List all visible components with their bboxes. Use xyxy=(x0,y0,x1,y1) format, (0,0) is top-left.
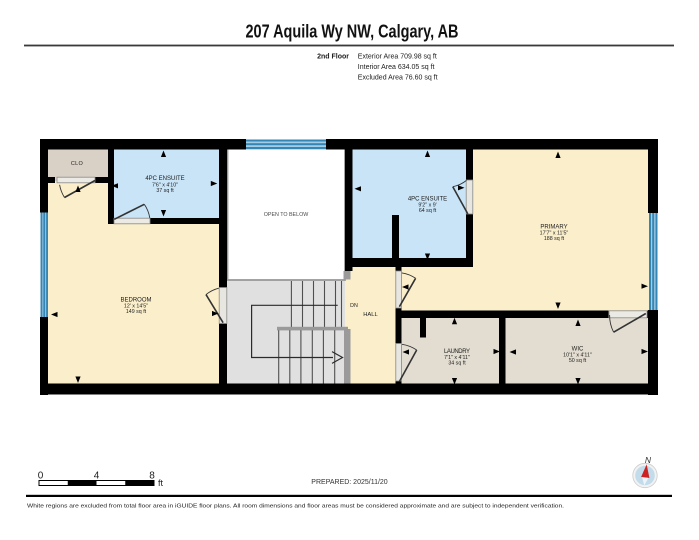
svg-text:50 sq ft: 50 sq ft xyxy=(569,358,587,364)
svg-text:White regions are excluded fro: White regions are excluded from total fl… xyxy=(27,503,565,509)
svg-text:0: 0 xyxy=(38,471,44,482)
svg-text:149 sq ft: 149 sq ft xyxy=(126,309,147,315)
svg-text:PREPARED: 2025/11/20: PREPARED: 2025/11/20 xyxy=(311,479,388,486)
svg-text:Interior Area 634.05 sq ft: Interior Area 634.05 sq ft xyxy=(358,64,435,71)
svg-text:8: 8 xyxy=(149,471,155,482)
svg-text:ft: ft xyxy=(158,478,164,488)
svg-text:4PC ENSUITE: 4PC ENSUITE xyxy=(145,176,184,182)
svg-text:188 sq ft: 188 sq ft xyxy=(544,236,565,242)
svg-text:4PC ENSUITE: 4PC ENSUITE xyxy=(408,197,447,203)
svg-text:Excluded Area 76.60 sq ft: Excluded Area 76.60 sq ft xyxy=(358,74,438,81)
svg-text:4: 4 xyxy=(94,471,100,482)
svg-text:CLO: CLO xyxy=(71,161,84,167)
svg-text:N: N xyxy=(645,455,652,465)
svg-text:DN: DN xyxy=(350,303,358,309)
svg-text:HALL: HALL xyxy=(363,312,378,318)
svg-text:37 sq ft: 37 sq ft xyxy=(156,188,174,194)
svg-text:Exterior Area 709.98 sq ft: Exterior Area 709.98 sq ft xyxy=(358,54,437,61)
svg-text:34 sq ft: 34 sq ft xyxy=(448,360,466,366)
svg-text:BEDROOM: BEDROOM xyxy=(120,297,151,303)
svg-text:2nd Floor: 2nd Floor xyxy=(317,54,349,61)
svg-text:207 Aquila Wy NW, Calgary, AB: 207 Aquila Wy NW, Calgary, AB xyxy=(246,22,459,42)
svg-text:WIC: WIC xyxy=(572,346,584,352)
svg-text:OPEN TO BELOW: OPEN TO BELOW xyxy=(264,212,309,218)
svg-text:64 sq ft: 64 sq ft xyxy=(419,208,437,214)
